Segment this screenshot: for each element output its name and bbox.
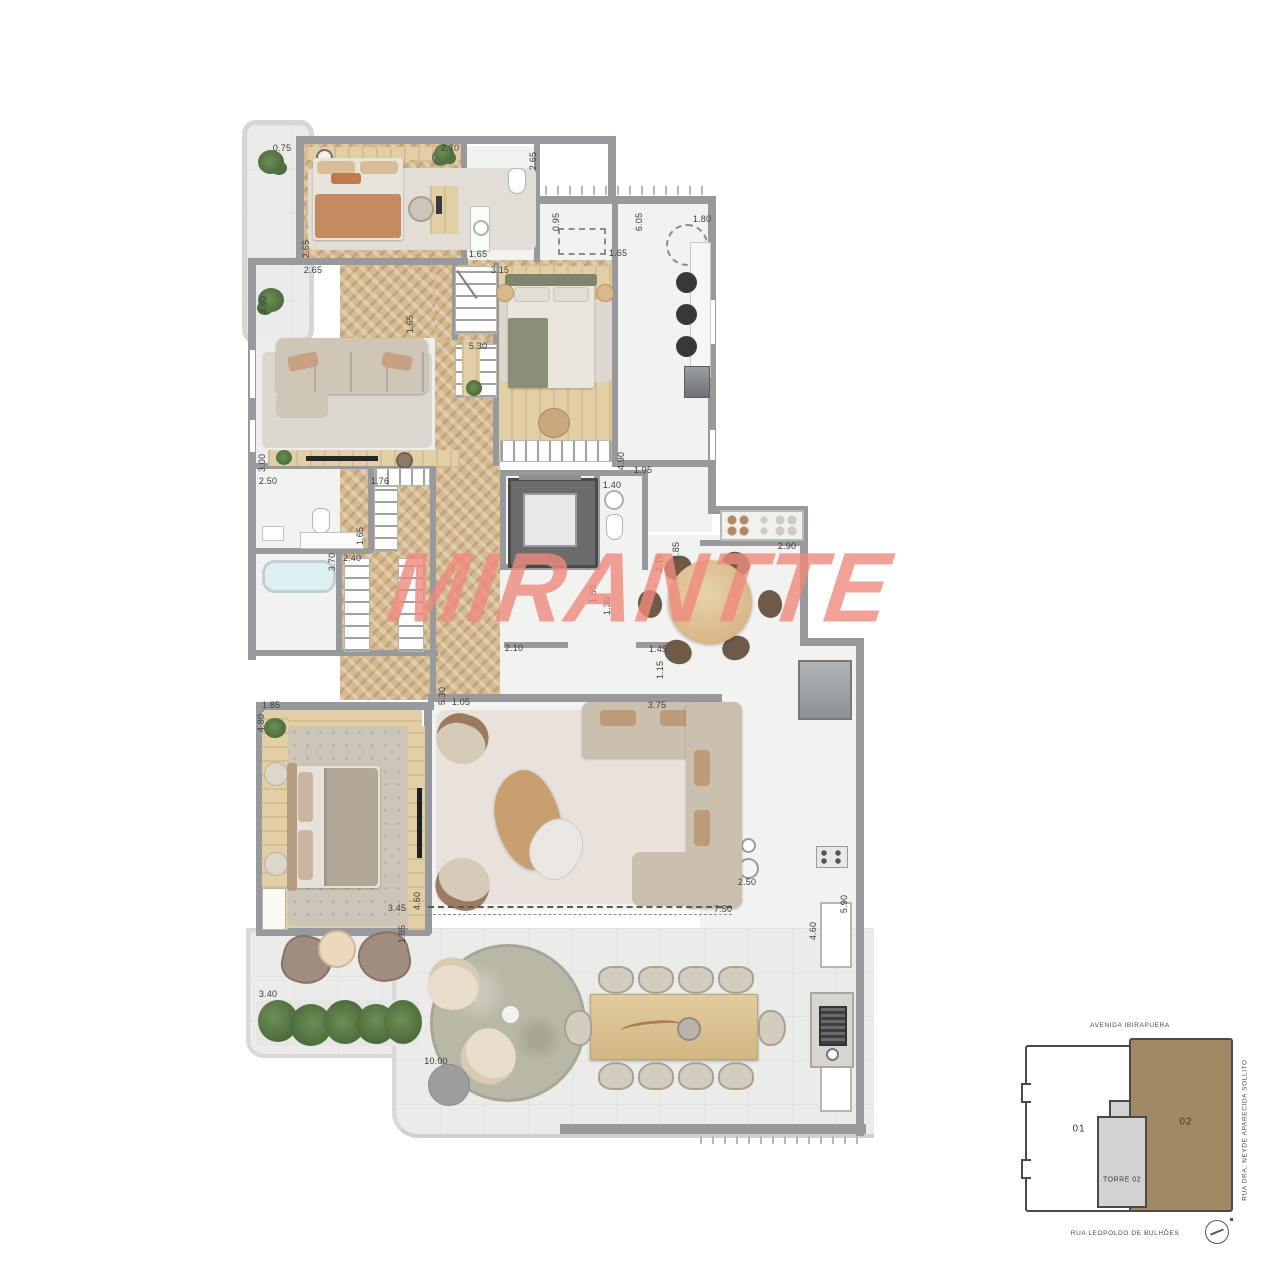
floor-plan-page: 0.752.702.652.652.653.901.651.653.155.30… <box>0 0 1280 1280</box>
dimension-label: 1.85 <box>397 925 407 943</box>
dimension-label: 2.65 <box>528 152 538 170</box>
dimension-label: 1.15 <box>655 661 665 679</box>
dimension-label: 1.65 <box>405 315 415 333</box>
dimension-label: 2.50 <box>738 877 756 887</box>
dimension-label: 3.00 <box>257 454 267 472</box>
dimension-label: 2.70 <box>441 143 459 153</box>
dimension-label: 0.95 <box>551 213 561 231</box>
dimension-label: 5.30 <box>469 341 487 351</box>
dimension-label: 2.65 <box>304 265 322 275</box>
dimension-label: 3.15 <box>491 265 509 275</box>
dimension-label: 3.75 <box>648 700 666 710</box>
dimension-label: 6.05 <box>634 213 644 231</box>
dimension-label: 2.10 <box>505 643 523 653</box>
dimension-label: 1.40 <box>603 480 621 490</box>
dimension-label: 3.70 <box>327 553 337 571</box>
watermark-text: MIRANTTE <box>382 530 898 644</box>
dimension-label: 7.50 <box>714 904 732 914</box>
dimension-label: 3.45 <box>388 903 406 913</box>
dimension-label: 1.45 <box>649 644 667 654</box>
dimension-label: 4.60 <box>808 922 818 940</box>
dimension-label: 1.65 <box>609 248 627 258</box>
dimension-label: 3.90 <box>258 296 268 314</box>
dimension-label: 1.85 <box>262 700 280 710</box>
dimension-label: 2.50 <box>259 476 277 486</box>
dimension-label: 4.60 <box>412 892 422 910</box>
dimension-label: 1.65 <box>469 249 487 259</box>
dimension-label: 10.00 <box>424 1056 448 1066</box>
dimension-label: 0.75 <box>273 143 291 153</box>
dimension-label: 3.40 <box>259 989 277 999</box>
dimension-label: 1.05 <box>452 697 470 707</box>
dimension-label: 1.65 <box>355 527 365 545</box>
dimension-label: 5.30 <box>437 687 447 705</box>
dimension-label: 5.90 <box>839 895 849 913</box>
dimension-label: 2.65 <box>301 240 311 258</box>
dimension-label: 4.80 <box>256 714 266 732</box>
dimension-label: 2.40 <box>343 553 361 563</box>
dimension-label: 1.80 <box>693 214 711 224</box>
dimension-label: 1.95 <box>634 465 652 475</box>
dimension-label: 4.90 <box>616 452 626 470</box>
dimension-label: 1.76 <box>371 476 389 486</box>
